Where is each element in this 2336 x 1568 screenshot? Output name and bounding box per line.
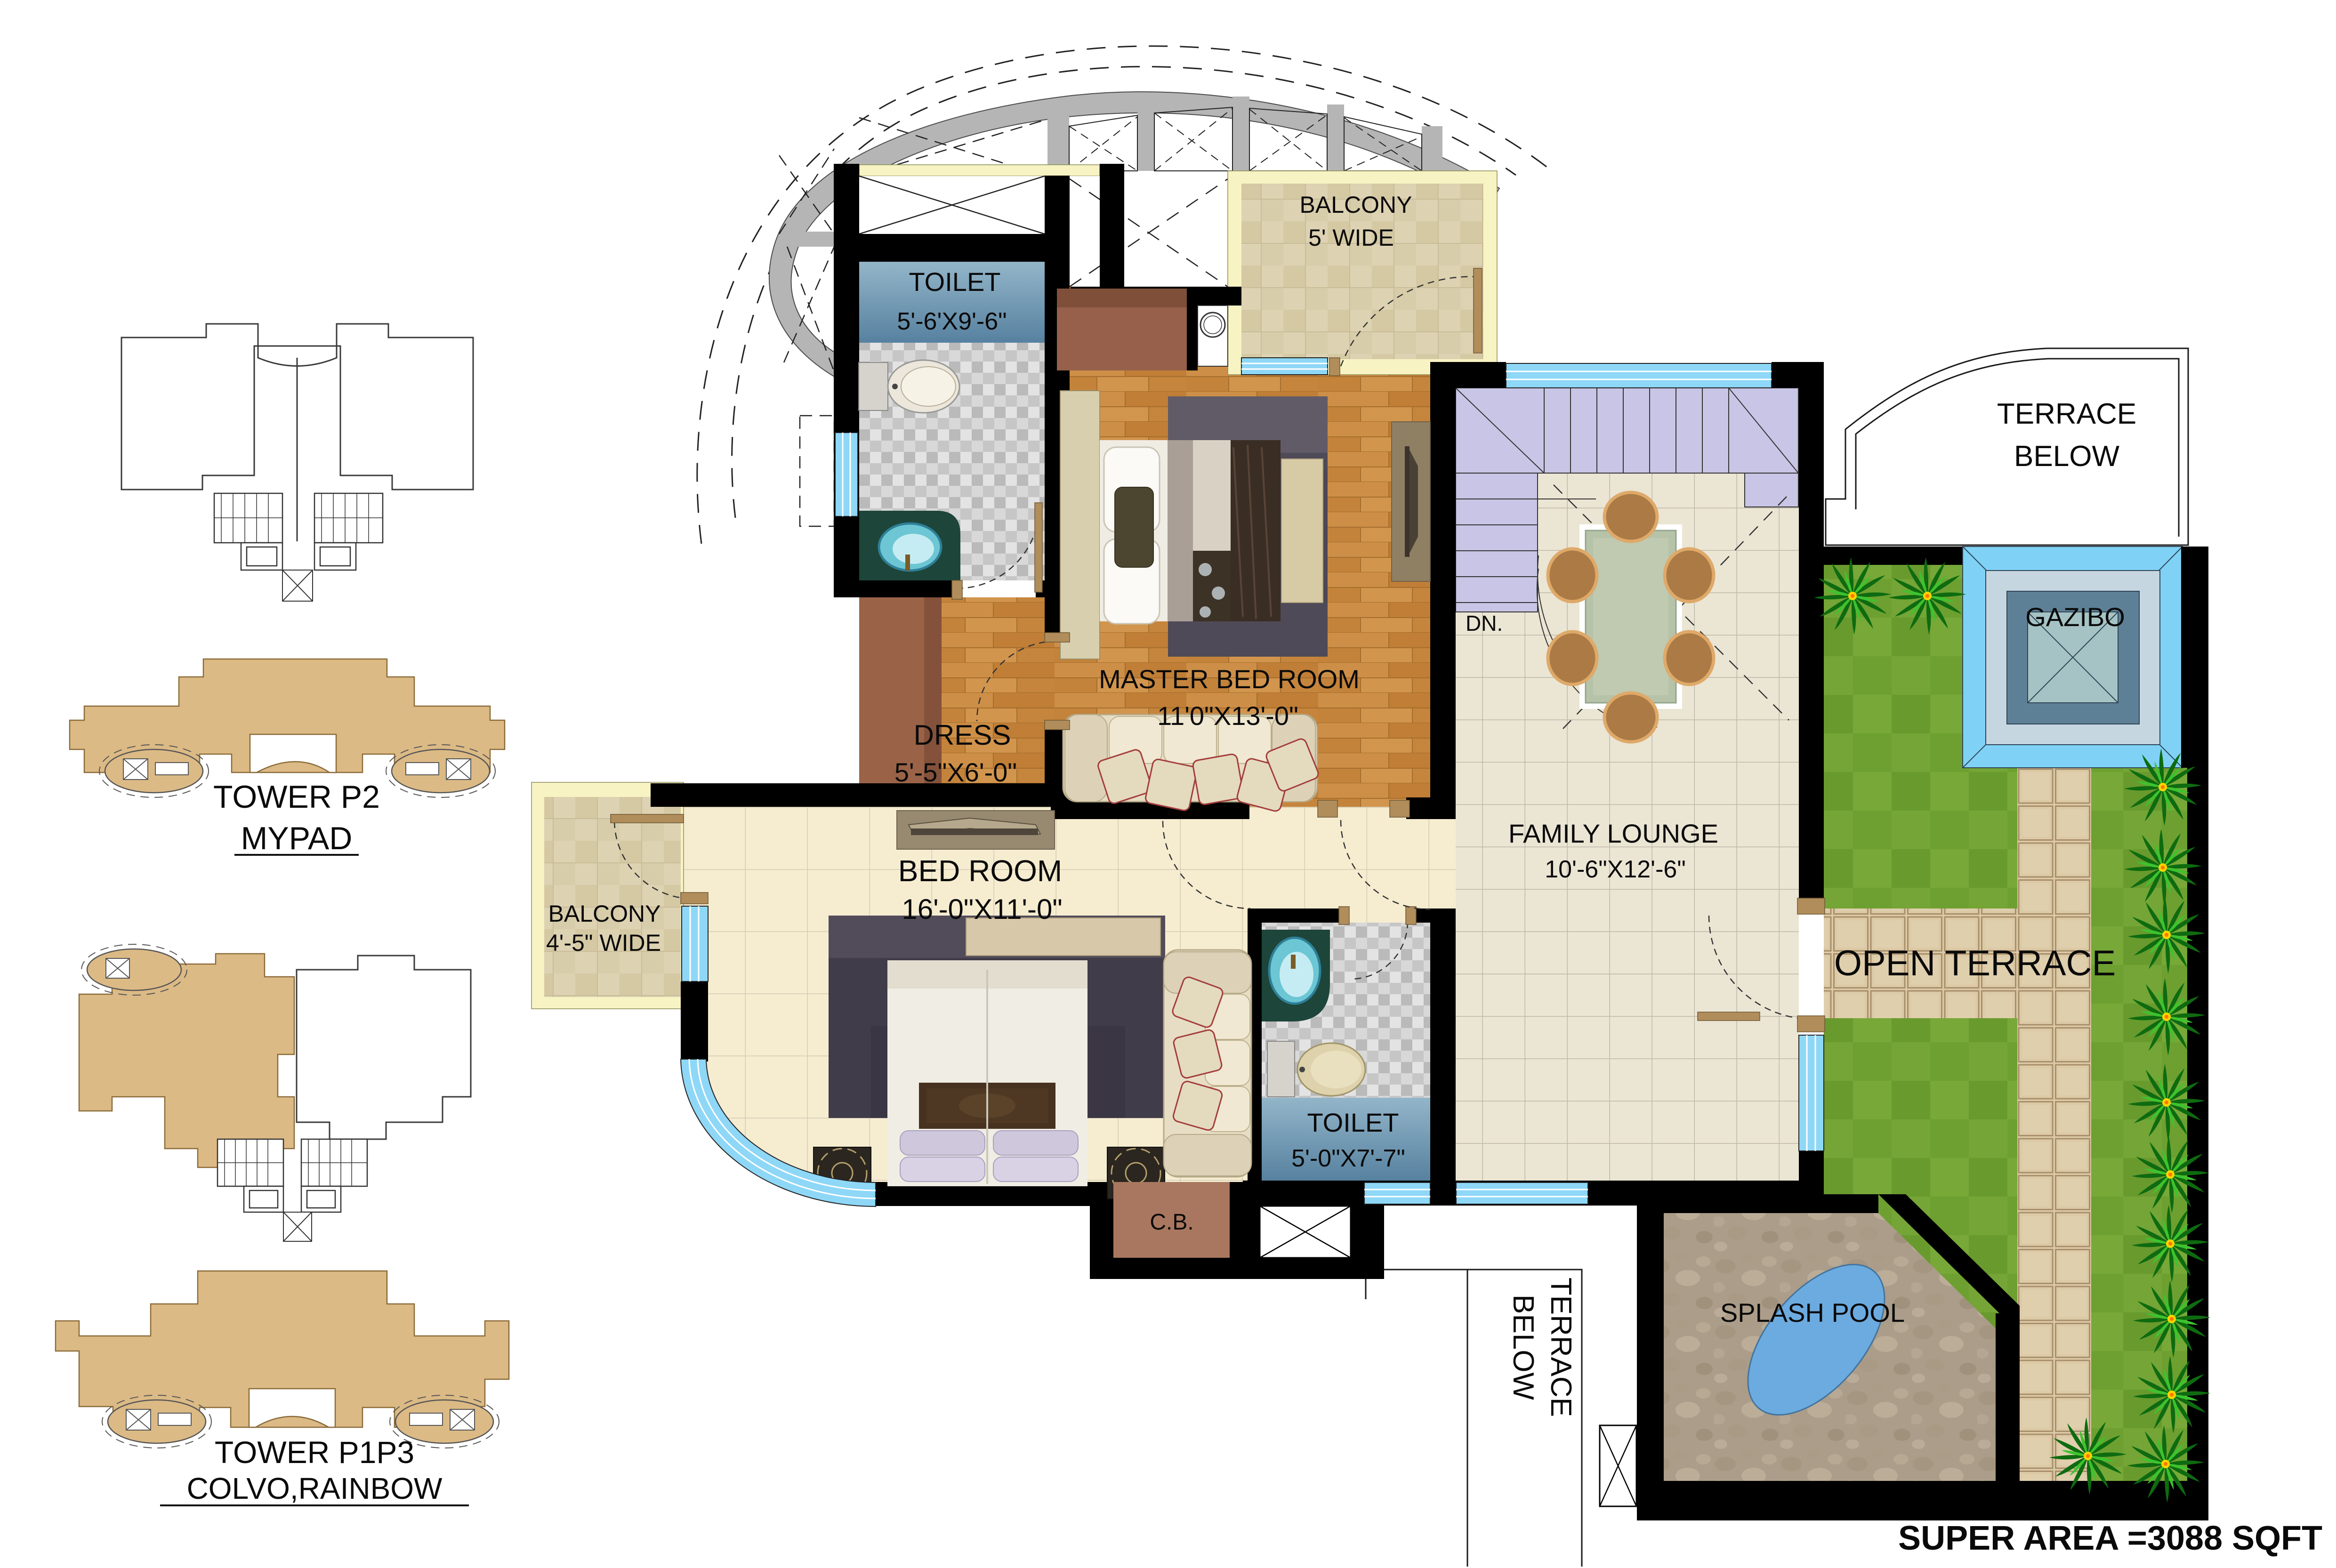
svg-text:5'-5"X6'-0": 5'-5"X6'-0": [894, 757, 1017, 787]
svg-text:DRESS: DRESS: [914, 719, 1011, 751]
svg-text:OPEN TERRACE: OPEN TERRACE: [1834, 943, 2116, 983]
svg-text:MASTER BED ROOM: MASTER BED ROOM: [1099, 664, 1360, 694]
svg-text:COLVO,RAINBOW: COLVO,RAINBOW: [187, 1472, 443, 1505]
svg-text:FAMILY LOUNGE: FAMILY LOUNGE: [1508, 819, 1718, 848]
svg-text:5'-6'X9'-6": 5'-6'X9'-6": [897, 308, 1007, 335]
svg-text:TERRACE: TERRACE: [1997, 398, 2136, 430]
svg-text:5' WIDE: 5' WIDE: [1308, 225, 1394, 251]
svg-text:BALCONY: BALCONY: [1300, 192, 1412, 218]
svg-text:SPLASH POOL: SPLASH POOL: [1720, 1298, 1905, 1327]
svg-text:16'-0"X11'-0": 16'-0"X11'-0": [902, 893, 1062, 925]
svg-text:BALCONY: BALCONY: [548, 901, 661, 927]
svg-text:DN.: DN.: [1466, 611, 1503, 635]
svg-text:10'-6"X12'-6": 10'-6"X12'-6": [1545, 856, 1686, 883]
svg-text:BELOW: BELOW: [2014, 440, 2119, 473]
svg-text:TERRACE: TERRACE: [1545, 1278, 1577, 1417]
svg-text:11'0"X13'-0": 11'0"X13'-0": [1157, 701, 1298, 731]
svg-text:4'-5" WIDE: 4'-5" WIDE: [546, 930, 661, 956]
svg-text:SUPER AREA =3088 SQFT: SUPER AREA =3088 SQFT: [1898, 1520, 2322, 1557]
svg-text:BED ROOM: BED ROOM: [898, 854, 1062, 888]
svg-text:TOWER P1P3: TOWER P1P3: [215, 1435, 414, 1470]
svg-text:MYPAD: MYPAD: [241, 820, 353, 856]
svg-text:TOWER P2: TOWER P2: [213, 779, 380, 815]
svg-text:5'-0"X7'-7": 5'-0"X7'-7": [1291, 1145, 1405, 1172]
svg-text:TOILET: TOILET: [909, 267, 1000, 297]
svg-text:C.B.: C.B.: [1150, 1210, 1193, 1235]
svg-text:BELOW: BELOW: [1507, 1295, 1539, 1400]
svg-text:TOILET: TOILET: [1307, 1108, 1399, 1137]
svg-text:GAZIBO: GAZIBO: [2025, 602, 2125, 632]
